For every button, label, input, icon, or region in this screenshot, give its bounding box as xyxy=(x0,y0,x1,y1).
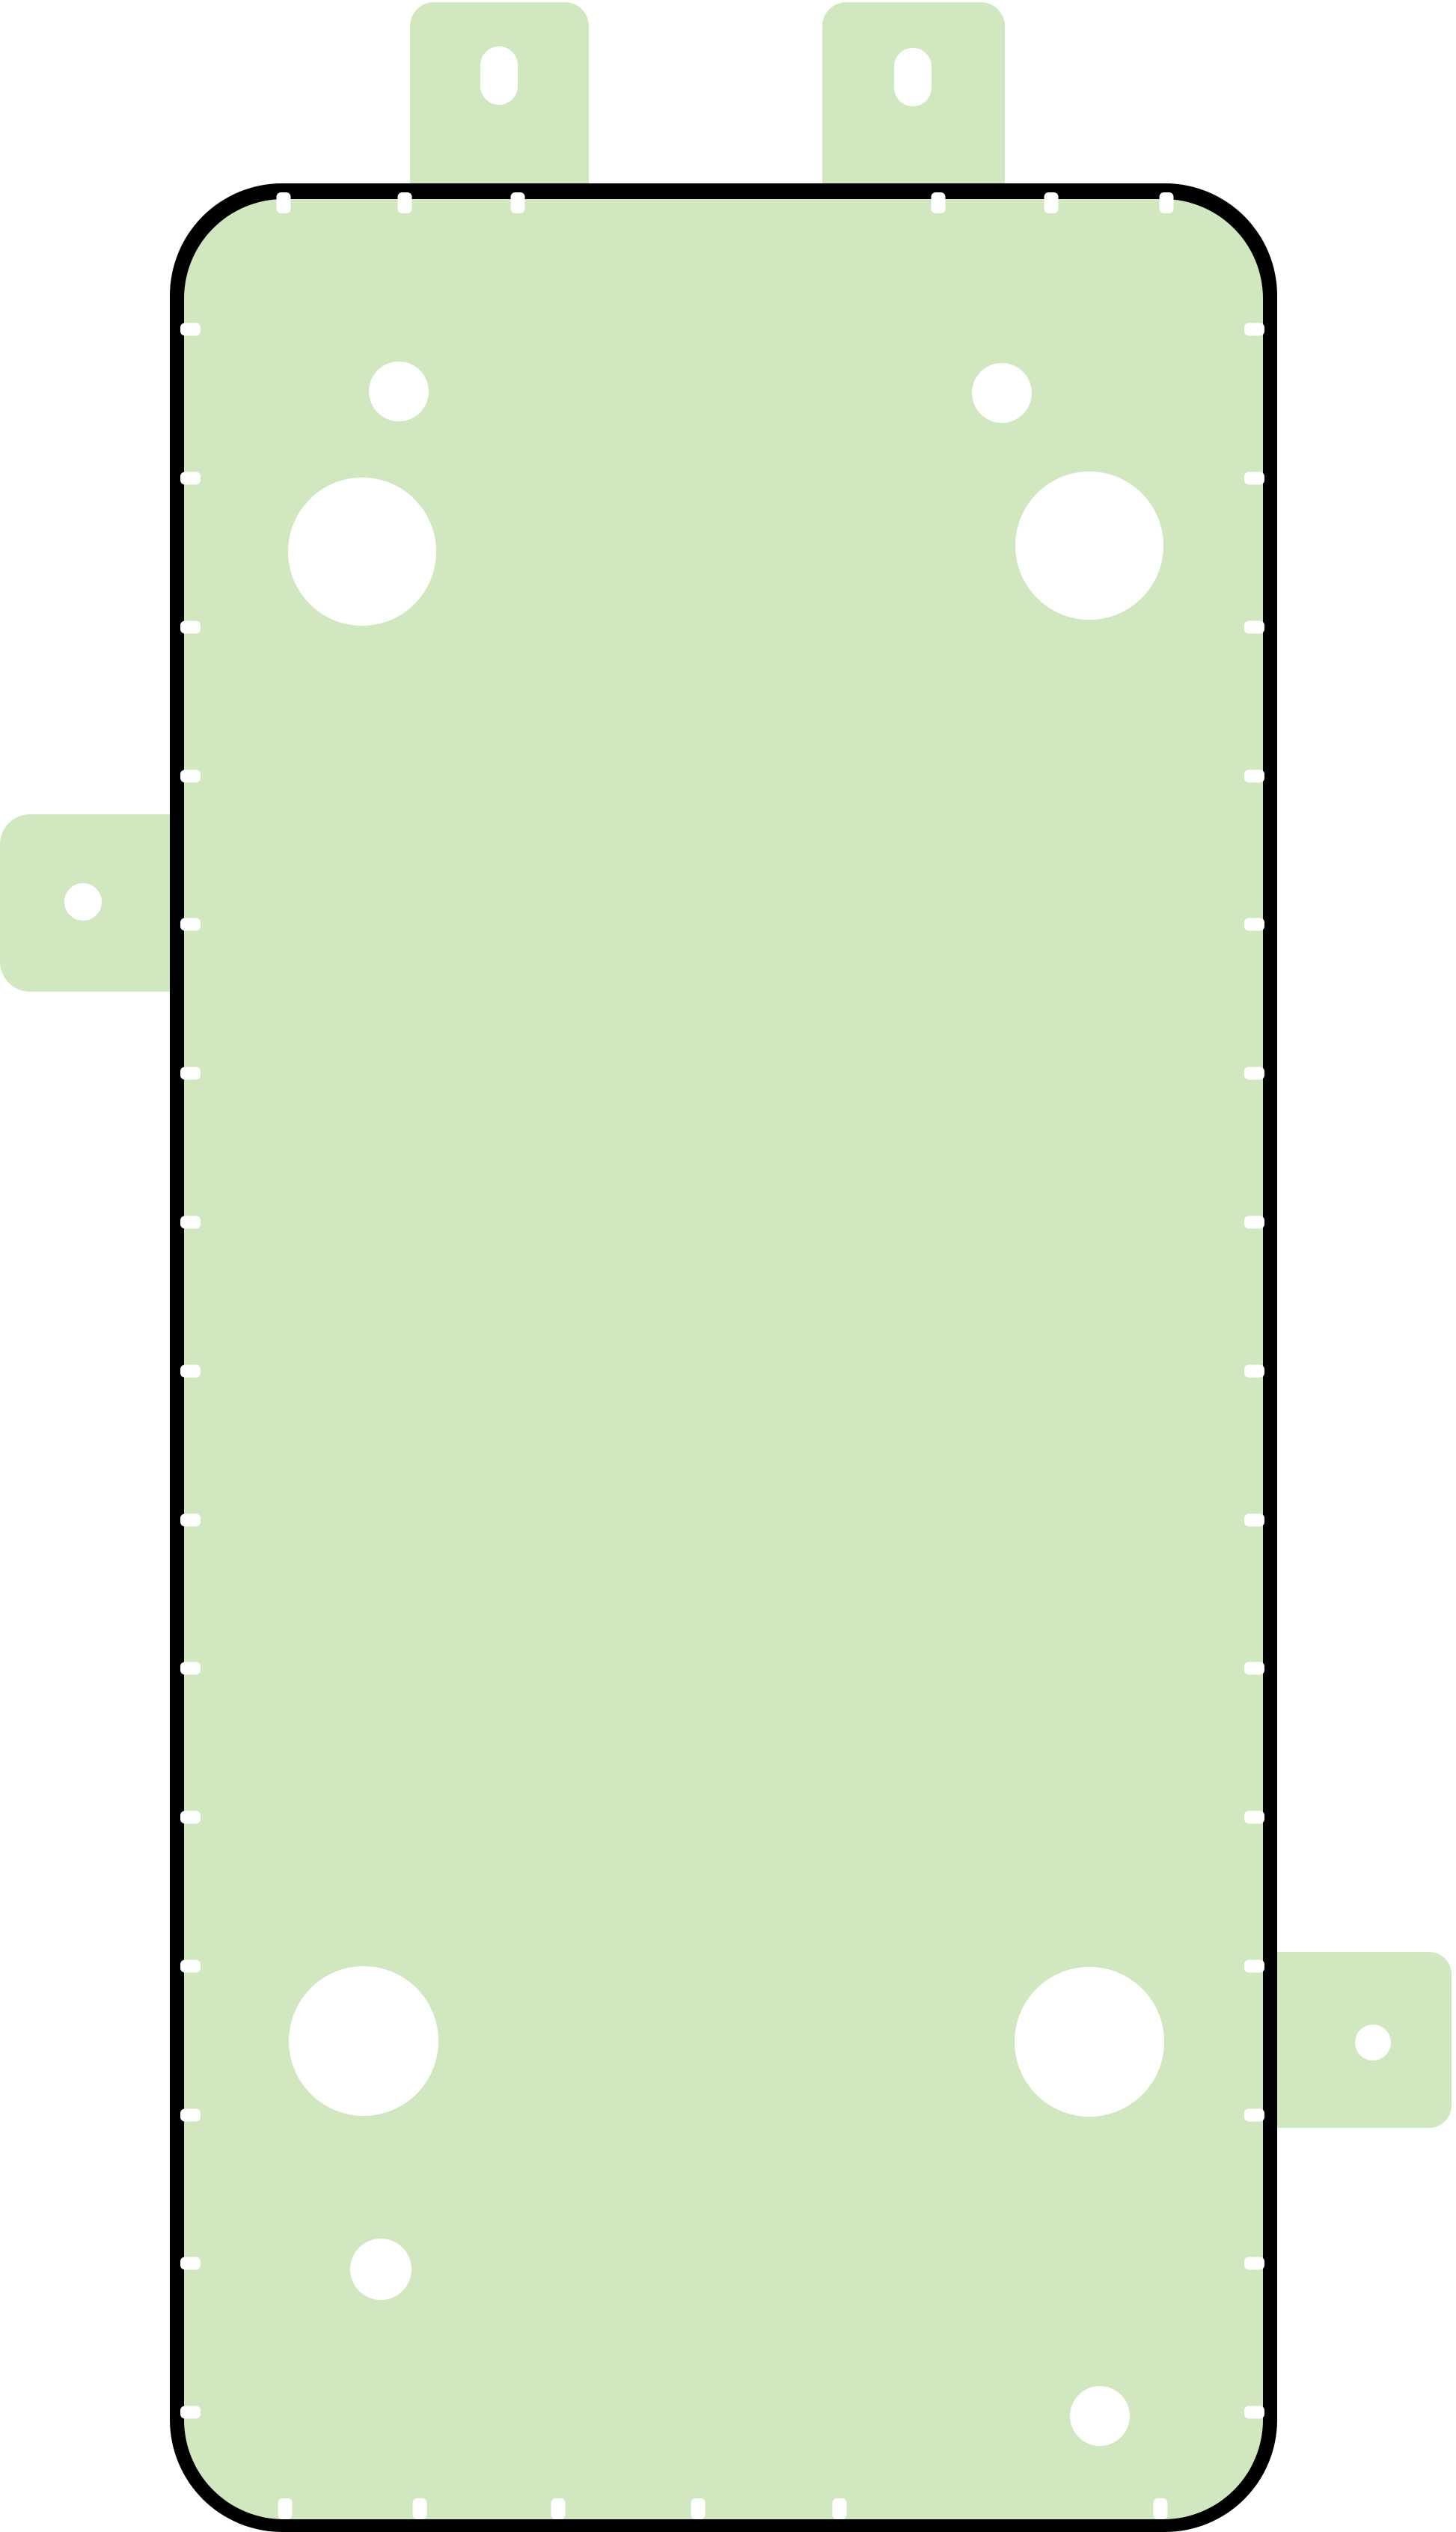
tick-bottom-1 xyxy=(278,2498,293,2519)
hole-top-right-small xyxy=(972,363,1032,423)
tick-top-6 xyxy=(1160,192,1174,213)
pull-tab-top-right-hole xyxy=(894,48,932,106)
tick-left-5 xyxy=(180,918,201,931)
tick-bottom-4 xyxy=(691,2498,706,2519)
hole-top-left-small xyxy=(369,362,429,421)
tick-top-5 xyxy=(1044,192,1059,213)
tick-right-6 xyxy=(1244,1067,1264,1080)
tick-top-2 xyxy=(398,192,412,213)
tick-right-1 xyxy=(1244,323,1264,336)
hole-bottom-right-large xyxy=(1015,1967,1164,2117)
hole-bottom-right-small xyxy=(1070,2386,1130,2446)
tick-right-8 xyxy=(1244,1365,1264,1378)
tick-left-12 xyxy=(180,1960,201,1973)
phone-adhesive-diagram xyxy=(0,0,1456,2532)
hole-bottom-left-small xyxy=(350,2239,412,2300)
pull-tab-left-hole xyxy=(64,883,102,921)
pull-tab-top-left-hole xyxy=(480,46,518,105)
tick-top-1 xyxy=(277,192,291,213)
tick-right-3 xyxy=(1244,621,1264,634)
tick-left-15 xyxy=(180,2406,201,2419)
tick-right-15 xyxy=(1244,2406,1264,2419)
tick-right-5 xyxy=(1244,918,1264,931)
tick-left-8 xyxy=(180,1365,201,1378)
tick-left-11 xyxy=(180,1811,201,1824)
tick-left-2 xyxy=(180,472,201,485)
tick-right-9 xyxy=(1244,1514,1264,1527)
tick-right-2 xyxy=(1244,472,1264,485)
hole-bottom-left-large xyxy=(289,1966,438,2116)
tick-right-7 xyxy=(1244,1216,1264,1229)
tick-left-7 xyxy=(180,1216,201,1229)
hole-top-right-large xyxy=(1015,472,1163,620)
tick-right-14 xyxy=(1244,2257,1264,2270)
tick-left-4 xyxy=(180,770,201,783)
tick-top-3 xyxy=(511,192,525,213)
adhesive-sticker-svg xyxy=(0,0,1456,2532)
tick-left-14 xyxy=(180,2257,201,2270)
tick-right-13 xyxy=(1244,2109,1264,2122)
tick-left-9 xyxy=(180,1514,201,1527)
tick-right-10 xyxy=(1244,1662,1264,1675)
tick-right-4 xyxy=(1244,770,1264,783)
tick-bottom-2 xyxy=(413,2498,427,2519)
tick-left-10 xyxy=(180,1662,201,1675)
tick-left-3 xyxy=(180,621,201,634)
tick-right-11 xyxy=(1244,1811,1264,1824)
tick-bottom-3 xyxy=(551,2498,566,2519)
tick-left-6 xyxy=(180,1067,201,1080)
tick-bottom-6 xyxy=(1154,2498,1168,2519)
tick-left-13 xyxy=(180,2109,201,2122)
tick-bottom-5 xyxy=(833,2498,847,2519)
tick-top-4 xyxy=(932,192,946,213)
pull-tab-right-hole xyxy=(1355,2025,1391,2060)
hole-top-left-large xyxy=(288,478,436,626)
tick-left-1 xyxy=(180,323,201,336)
tick-right-12 xyxy=(1244,1960,1264,1973)
